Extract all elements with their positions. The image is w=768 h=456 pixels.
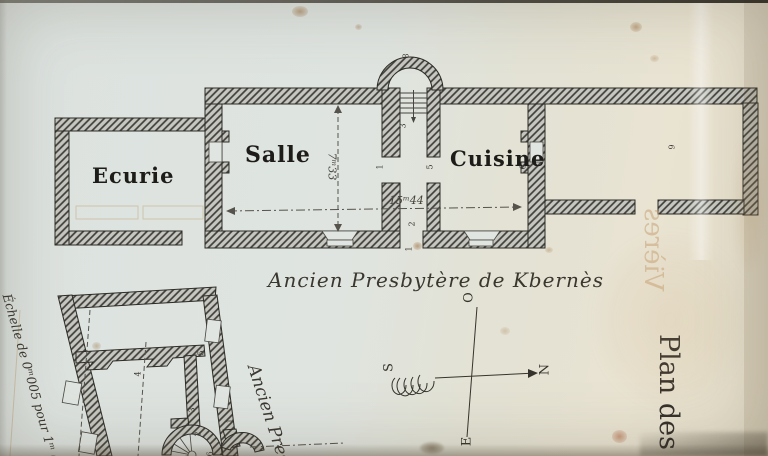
room-label-cuisine: Cuisine: [450, 146, 545, 171]
lower-mark-1: 1: [227, 418, 235, 423]
photo-top-edge: [0, 0, 768, 3]
page-right-edge-shade: [744, 0, 768, 456]
page-fold-highlight: [688, 0, 714, 260]
plan-mark-entry: 1: [406, 246, 414, 251]
photographed-plan-page: Ecurie Salle Cuisine 7ᵐ33 15ᵐ44 Ancien P…: [0, 0, 768, 456]
plan-mark-door1: 1: [377, 164, 385, 169]
photo-left-edge: [0, 0, 7, 456]
plan-mark-oven: 8: [403, 53, 411, 58]
compass-south: S: [382, 361, 397, 375]
plate-caption: Ancien Presbytère de Kbernès: [268, 268, 604, 292]
lower-mark-3: 3: [189, 407, 197, 412]
compass-north: N: [538, 363, 553, 377]
photo-corner-shadow: [640, 432, 768, 456]
plan-mark-door5: 5: [427, 164, 435, 169]
lower-mark-2: 2: [195, 431, 203, 436]
plan-mark-niche6: 6: [520, 164, 528, 169]
compass-west: O: [462, 291, 477, 305]
dimension-length: 15ᵐ44: [389, 194, 424, 207]
dimension-depth: 7ᵐ33: [326, 147, 339, 187]
lower-mark-5: 5: [198, 350, 206, 355]
lower-mark-4: 4: [135, 371, 143, 376]
oven-apse: [377, 57, 443, 90]
staircase: [400, 90, 427, 123]
compass-rose: [392, 307, 538, 437]
plan-mark-room9: 9: [669, 144, 677, 149]
lower-plan-walls: [58, 287, 264, 456]
plan-mark-stairs: 3: [400, 123, 408, 128]
room-label-salle: Salle: [245, 142, 311, 168]
room-label-ecurie: Ecurie: [92, 163, 174, 188]
plan-mark-passage: 2: [409, 221, 417, 226]
